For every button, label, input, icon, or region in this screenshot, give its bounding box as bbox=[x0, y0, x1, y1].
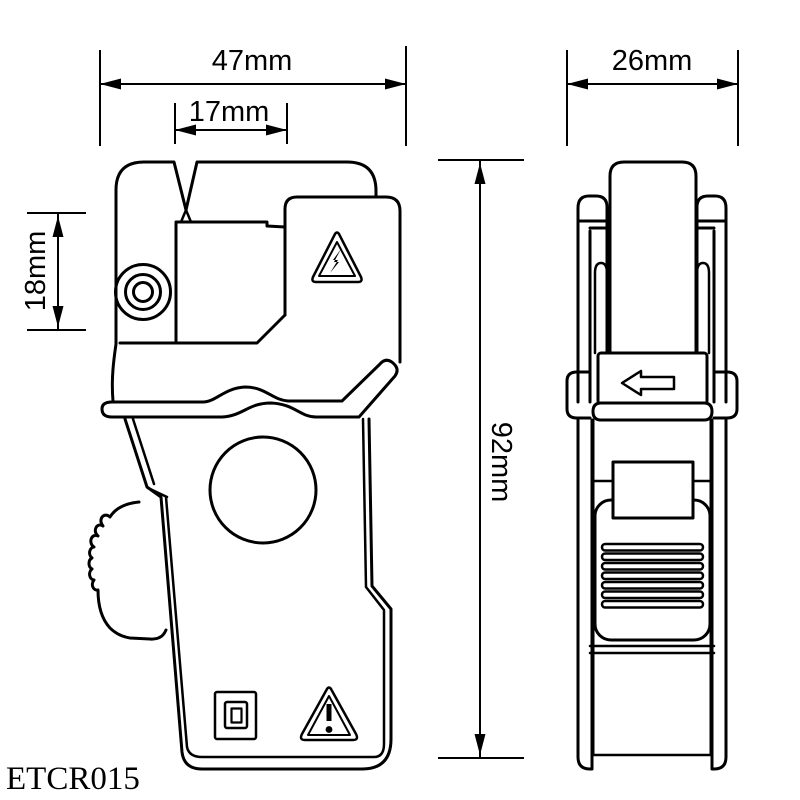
dimension-17mm: 17mm bbox=[175, 96, 287, 144]
front-body-inner-line bbox=[166, 419, 384, 757]
side-collar-bar bbox=[593, 403, 712, 420]
side-inner-arm-right bbox=[697, 263, 709, 353]
technical-drawing: 47mm 17mm 26mm 18mm 92mm ETCR015 bbox=[0, 0, 800, 800]
dim-label-side-width: 26mm bbox=[612, 45, 693, 77]
side-jaw bbox=[610, 162, 696, 353]
model-number: ETCR015 bbox=[6, 761, 140, 797]
dim-label-front-width: 47mm bbox=[212, 45, 293, 77]
double-insulation-icon bbox=[215, 692, 256, 739]
high-voltage-warning-icon bbox=[312, 233, 361, 283]
front-body-outline bbox=[125, 419, 391, 769]
jaw-seam-lines bbox=[181, 210, 191, 222]
grip-slats bbox=[602, 544, 703, 608]
side-button bbox=[613, 462, 693, 518]
slide-block bbox=[598, 353, 707, 404]
collar-band bbox=[102, 360, 397, 417]
dimension-18mm: 18mm bbox=[20, 213, 86, 330]
dim-label-jaw-window: 17mm bbox=[189, 96, 270, 128]
side-view bbox=[567, 162, 737, 769]
side-rail-left-lower bbox=[578, 420, 593, 769]
side-lower-lines bbox=[590, 646, 714, 755]
dim-label-overall-height: 92mm bbox=[485, 422, 517, 503]
front-body-panel bbox=[285, 197, 400, 362]
dimension-92mm: 92mm bbox=[438, 160, 524, 758]
front-dial-circle bbox=[210, 437, 316, 543]
drawing-svg: 47mm 17mm 26mm 18mm 92mm ETCR015 bbox=[0, 0, 800, 800]
dim-label-hinge-height: 18mm bbox=[20, 231, 52, 312]
side-inner-arm-left bbox=[595, 263, 607, 353]
front-view bbox=[89, 162, 400, 769]
caution-warning-icon bbox=[301, 688, 357, 741]
hinge-pivot bbox=[116, 265, 171, 320]
trigger-lever bbox=[89, 502, 166, 639]
dimension-26mm: 26mm bbox=[567, 45, 738, 146]
side-rail-right-lower bbox=[711, 420, 726, 769]
